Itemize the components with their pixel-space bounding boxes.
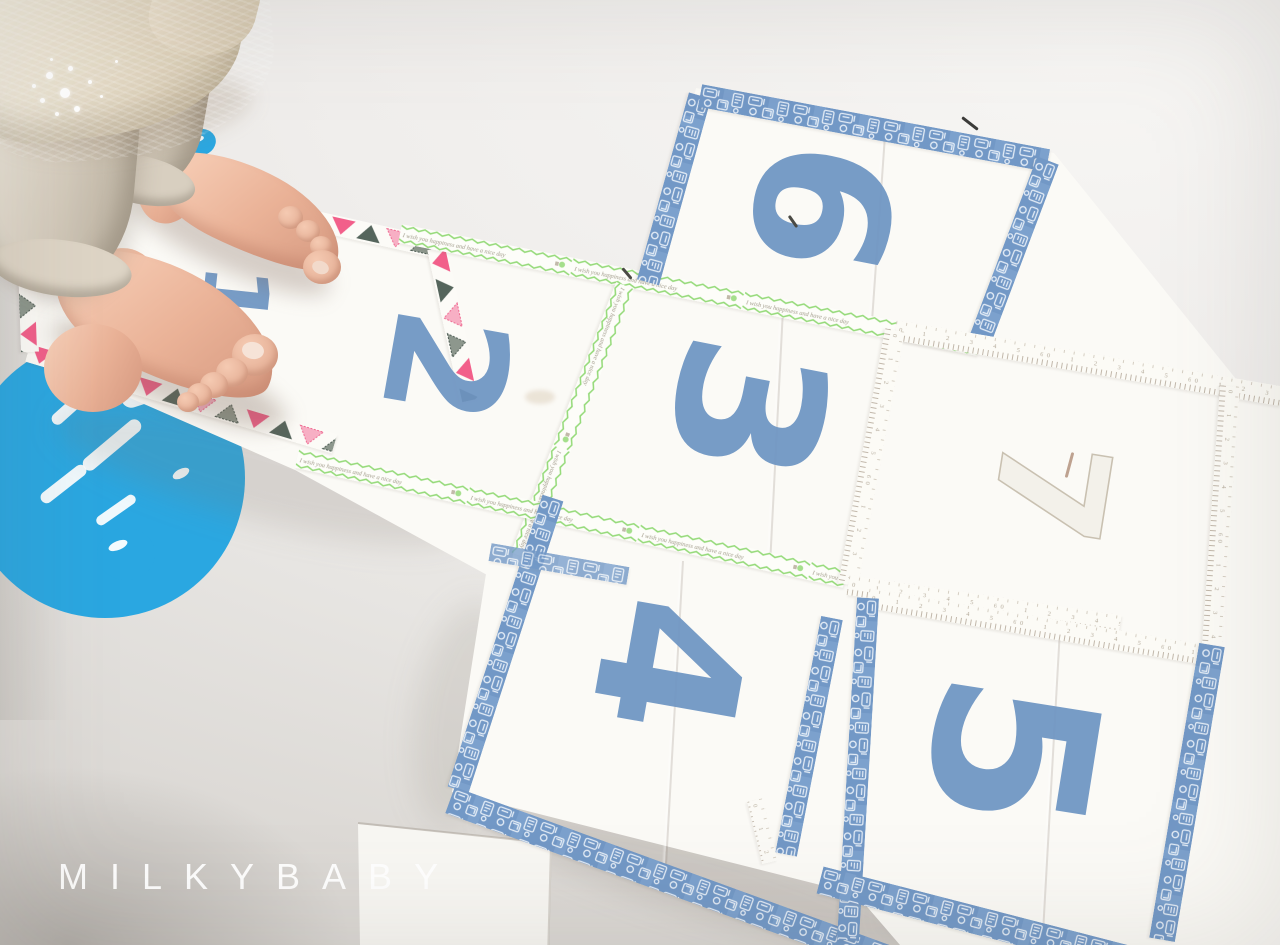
sequin-sparkle-6 [88,80,92,84]
near-toe-5 [177,392,199,412]
sequin-sparkle-7 [32,84,36,88]
sequin-sparkle-10 [100,95,103,98]
sequin-sparkle-5 [55,112,59,116]
sequin-sparkle-9 [50,58,53,61]
watermark-milkybaby: MILKYBABY [58,856,460,898]
pen-mark-1 [961,116,979,131]
photo-scene-hopscotch-tape-mat: MILKYBABY 1234567 [0,0,1280,945]
sequin-sparkle-4 [74,106,80,112]
splash-droplet-5 [97,528,155,580]
near-heel [44,324,142,412]
sequin-sparkle-1 [46,72,53,79]
tulle-gauze-overlay [0,0,282,170]
sequin-sparkle-3 [40,98,45,103]
sequin-sparkle-2 [60,88,70,98]
sequin-sparkle-8 [68,66,73,71]
sequin-sparkle-11 [115,60,118,63]
